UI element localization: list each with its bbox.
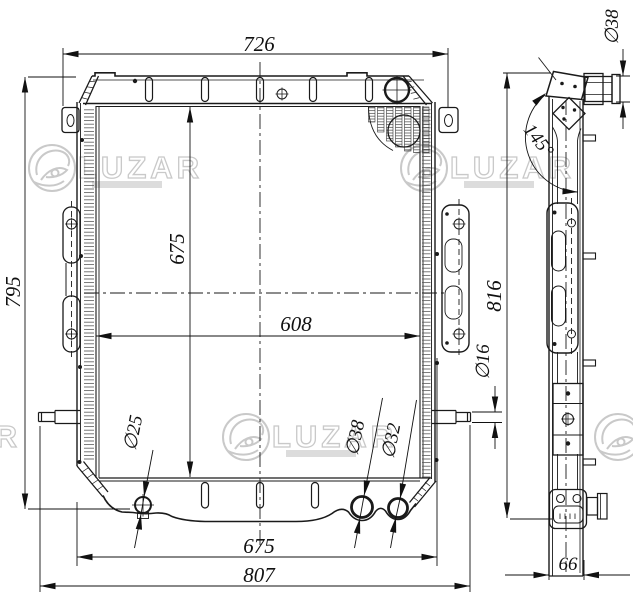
right-corner-tab [439, 108, 458, 133]
svg-text:726: 726 [243, 32, 275, 56]
side-lower-plate [553, 384, 583, 456]
tilted-top-tank [539, 58, 589, 130]
svg-text:∅16: ∅16 [473, 344, 494, 380]
bolt-cross-circle [276, 88, 289, 101]
side-pins [583, 135, 596, 465]
svg-text:816: 816 [482, 280, 506, 312]
dim-core-width: 608 [96, 312, 420, 339]
watermark-text: LUZAR [272, 419, 397, 454]
boss-pipe-right [432, 411, 471, 424]
rivet-dot [133, 79, 137, 83]
right-fin-band [422, 108, 431, 478]
side-outlet-pipe [587, 498, 598, 516]
svg-text:∅38: ∅38 [602, 9, 623, 45]
dim-mount-width: 675 [77, 358, 437, 566]
svg-text:795: 795 [1, 276, 25, 308]
left-fin-band [84, 108, 94, 462]
radiator-technical-drawing: LUZAR LUZAR LUZAR LUZAR [0, 0, 633, 596]
top-inlet-pipe [584, 74, 620, 105]
top-tank-slots [146, 78, 373, 102]
bottom-tank [77, 462, 436, 522]
side-bottom-bracket [550, 490, 608, 529]
svg-text:66: 66 [559, 554, 579, 575]
watermark-text: LUZAR [450, 150, 575, 185]
watermark-text: LUZAR [0, 419, 21, 454]
watermark-subtitle-bar [464, 181, 534, 188]
side-bracket-plate [547, 198, 578, 358]
svg-text:675: 675 [165, 233, 189, 265]
watermark-text: LUZAR [78, 150, 203, 185]
dim-overall-width: 807 [40, 425, 470, 592]
right-tab-hole [445, 115, 453, 127]
front-view [39, 62, 471, 546]
dim-outlet-right-dia: ∅32 [378, 400, 417, 548]
side-view [539, 58, 621, 577]
luzar-logo-icon [223, 414, 269, 460]
fin-grille-detail [369, 107, 430, 153]
svg-text:∅25: ∅25 [120, 413, 147, 452]
svg-text:608: 608 [280, 312, 312, 336]
luzar-logo-icon [595, 414, 633, 460]
angle-reference-line [539, 58, 557, 81]
dim-boss-dia: ∅16 [472, 344, 502, 449]
watermark-subtitle-bar [92, 181, 162, 188]
drawing-canvas: LUZAR LUZAR LUZAR LUZAR [0, 0, 633, 596]
right-bracket [442, 199, 469, 357]
svg-text:807: 807 [243, 563, 276, 587]
dimensions: 726 795 675 608 816 [1, 9, 630, 592]
luzar-logo-icon [29, 145, 75, 191]
watermark-tiles: LUZAR LUZAR LUZAR LUZAR [0, 145, 633, 460]
left-tab-hole [67, 115, 74, 127]
drain-plug [132, 494, 154, 519]
dim-top-pipe-dia: ∅38 [602, 9, 630, 129]
inlet-pipe-left [39, 411, 81, 424]
svg-text:675: 675 [243, 534, 275, 558]
dim-top-width: 726 [63, 32, 448, 107]
